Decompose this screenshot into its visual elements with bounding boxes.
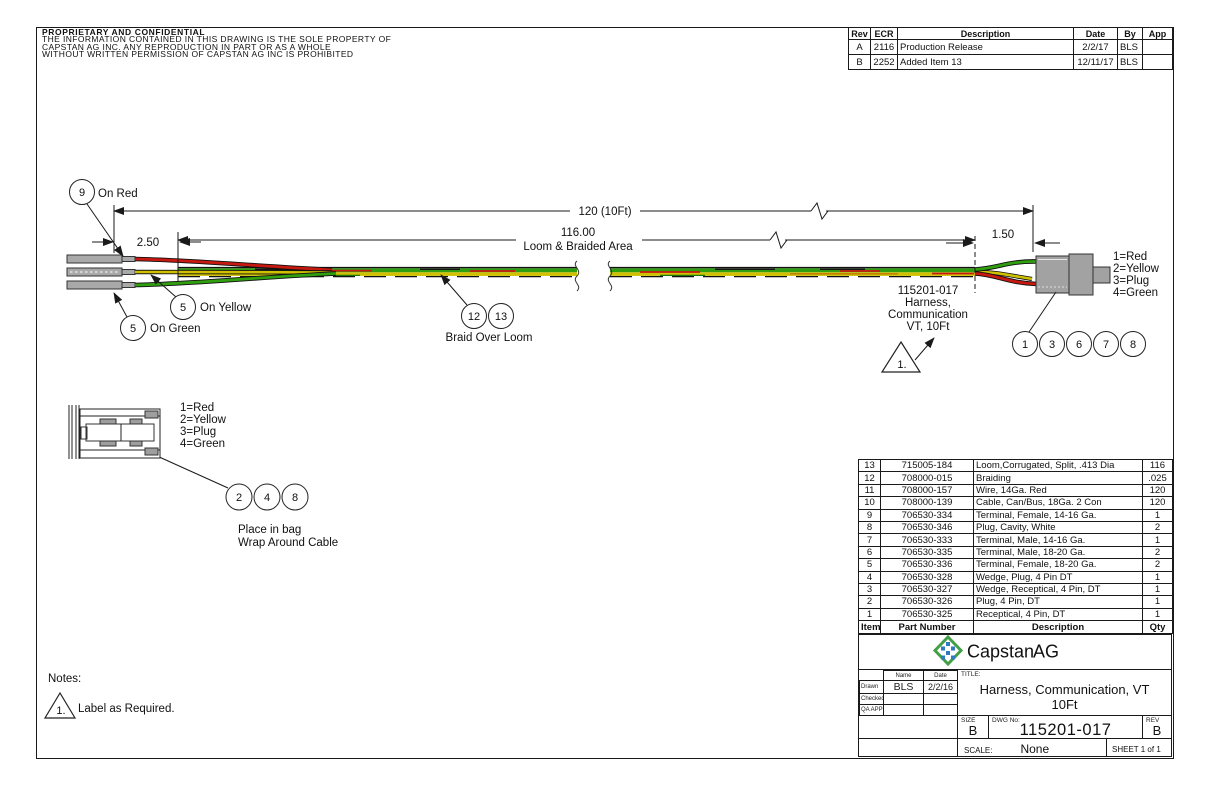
- svg-text:1.: 1.: [897, 359, 906, 371]
- bom-qty: 2: [1143, 521, 1173, 533]
- bom-item: 4: [859, 571, 881, 583]
- dim-left-stub-text: 2.50: [137, 237, 159, 249]
- bom-qty: 2: [1143, 546, 1173, 558]
- approvals-date: [924, 694, 958, 705]
- bom-row: 1706530-325Receptical, 4 Pin, DT1: [859, 608, 1173, 620]
- bom-row: 4706530-328Wedge, Plug, 4 Pin DT1: [859, 571, 1173, 583]
- bom-part: 706530-325: [881, 608, 974, 620]
- bom-desc: Wedge, Receptical, 4 Pin, DT: [974, 583, 1143, 595]
- svg-text:5: 5: [180, 302, 186, 314]
- svg-text:Communication: Communication: [888, 309, 968, 321]
- pin-labels-detail: 1=Red 2=Yellow 3=Plug 4=Green: [180, 402, 227, 450]
- bom-part: 706530-328: [881, 571, 974, 583]
- approvals-date: 2/2/16: [924, 681, 958, 694]
- approvals-name: [884, 694, 924, 705]
- bom-row: 11708000-157Wire, 14Ga. Red120: [859, 484, 1173, 496]
- dwg-label: DWG No:: [992, 717, 1020, 724]
- bag-note-line1: Place in bag: [238, 524, 301, 536]
- logo-brand-text: Capstan: [967, 642, 1034, 662]
- callout-on-red: On Red: [98, 188, 138, 200]
- dt-connector: [1036, 254, 1110, 295]
- bom-desc: Cable, Can/Bus, 18Ga. 2 Con: [974, 497, 1143, 509]
- dim-right-stub-text: 1.50: [992, 229, 1014, 241]
- svg-text:Harness,: Harness,: [905, 297, 951, 309]
- bom-item: 12: [859, 472, 881, 484]
- bom-row: 10708000-139Cable, Can/Bus, 18Ga. 2 Con1…: [859, 497, 1173, 509]
- bom-row: 5706530-336Terminal, Female, 18-20 Ga.2: [859, 559, 1173, 571]
- approvals-name: BLS: [884, 681, 924, 694]
- note-1-text: Label as Required.: [78, 703, 175, 715]
- dim-overall-text: 120 (10Ft): [578, 206, 631, 218]
- drawing-title-line2: 10Ft: [958, 697, 1171, 712]
- bom-qty: .025: [1143, 472, 1173, 484]
- drawing-sheet: PROPRIETARY AND CONFIDENTIAL THE INFORMA…: [0, 0, 1224, 792]
- logo-suffix-text: AG: [1033, 642, 1059, 662]
- connector-detail-view: [69, 405, 160, 459]
- rev-cell-block: REV B: [1142, 715, 1171, 738]
- approvals-name: [884, 705, 924, 716]
- dwg-cell: DWG No: 115201-017: [988, 715, 1142, 738]
- approvals-name-header: Name: [884, 671, 924, 681]
- callout-on-yellow: On Yellow: [200, 302, 252, 314]
- title-block: Capstan AG Name Date Drawn BLS 2/2/16 Ch…: [858, 634, 1172, 757]
- callout-braid: Braid Over Loom: [446, 332, 533, 344]
- right-wires: [975, 261, 1037, 284]
- bom-part: 706530-333: [881, 534, 974, 546]
- svg-text:3: 3: [1049, 339, 1055, 351]
- svg-text:3=Plug: 3=Plug: [1113, 275, 1149, 287]
- bom-row: 13715005-184Loom,Corrugated, Split, .413…: [859, 460, 1173, 472]
- bom-qty: 1: [1143, 571, 1173, 583]
- dim-loom-label: Loom & Braided Area: [523, 241, 633, 253]
- svg-text:115201-017: 115201-017: [898, 285, 959, 297]
- svg-text:3=Plug: 3=Plug: [180, 426, 216, 438]
- logo-diamond-icon: [935, 637, 961, 664]
- bom-part: 708000-139: [881, 497, 974, 509]
- bom-part: 706530-346: [881, 521, 974, 533]
- svg-text:12: 12: [468, 311, 480, 323]
- bom-row: 2706530-326Plug, 4 Pin, DT1: [859, 596, 1173, 608]
- bom-item: 2: [859, 596, 881, 608]
- bom-part: 706530-327: [881, 583, 974, 595]
- left-wires: [135, 259, 336, 285]
- size-label: SIZE: [961, 717, 975, 724]
- bom-desc: Plug, 4 Pin, DT: [974, 596, 1143, 608]
- bom-qty: 116: [1143, 460, 1173, 472]
- svg-text:1=Red: 1=Red: [1113, 251, 1147, 263]
- bom-qty: 1: [1143, 534, 1173, 546]
- pin-labels-right: 1=Red 2=Yellow 3=Plug 4=Green: [1113, 251, 1160, 299]
- svg-text:VT, 10Ft: VT, 10Ft: [907, 321, 951, 333]
- bom-qty: 1: [1143, 583, 1173, 595]
- svg-text:2=Yellow: 2=Yellow: [1113, 263, 1160, 275]
- bom-desc: Terminal, Male, 14-16 Ga.: [974, 534, 1143, 546]
- approvals-label: Checked: [860, 694, 884, 705]
- svg-text:2: 2: [236, 492, 242, 504]
- approvals-date-header: Date: [924, 671, 958, 681]
- bom-desc: Terminal, Female, 18-20 Ga.: [974, 559, 1143, 571]
- bag-note-line2: Wrap Around Cable: [238, 537, 338, 549]
- approvals-table: Name Date Drawn BLS 2/2/16 Checked QA AP…: [859, 670, 958, 716]
- title-label: TITLE:: [961, 671, 981, 678]
- bom-row: 7706530-333Terminal, Male, 14-16 Ga.1: [859, 534, 1173, 546]
- cable-break-left: [575, 261, 578, 291]
- scale-label: SCALE:: [964, 746, 992, 755]
- bom-qty: 120: [1143, 497, 1173, 509]
- bom-item: 6: [859, 546, 881, 558]
- size-cell: SIZE B: [957, 715, 988, 738]
- svg-text:5: 5: [130, 323, 136, 335]
- flag-note-1: 1.: [882, 342, 920, 372]
- bom-qty: 1: [1143, 509, 1173, 521]
- scale-value: None: [1020, 742, 1049, 756]
- bom-part: 708000-157: [881, 484, 974, 496]
- bom-row: 12708000-015Braiding.025: [859, 472, 1173, 484]
- svg-text:8: 8: [292, 492, 298, 504]
- svg-text:9: 9: [79, 187, 85, 199]
- bom-part: 706530-335: [881, 546, 974, 558]
- title-cell: TITLE: Harness, Communication, VT 10Ft: [957, 670, 1171, 715]
- approvals-empty-box: [859, 715, 957, 738]
- bom-qty: 1: [1143, 608, 1173, 620]
- bom-header: Item: [859, 621, 881, 634]
- bom-item: 3: [859, 583, 881, 595]
- svg-text:7: 7: [1103, 339, 1109, 351]
- svg-text:1=Red: 1=Red: [180, 402, 214, 414]
- notes-flag-1: 1.: [45, 693, 75, 718]
- bom-qty: 2: [1143, 559, 1173, 571]
- bom-header: Part Number: [881, 621, 974, 634]
- bom-desc: Loom,Corrugated, Split, .413 Dia: [974, 460, 1143, 472]
- svg-text:1.: 1.: [56, 705, 65, 717]
- company-logo: Capstan AG: [859, 635, 1171, 670]
- bom-qty: 120: [1143, 484, 1173, 496]
- bom-item: 1: [859, 608, 881, 620]
- scale-cell: SCALE: None: [957, 738, 1106, 756]
- balloon-numbers: 9 5 5 12 13 1 3 6 7 8 2 4 8: [79, 187, 1136, 504]
- bom-row: 6706530-335Terminal, Male, 18-20 Ga.2: [859, 546, 1173, 558]
- bom-item: 10: [859, 497, 881, 509]
- part-callout: 115201-017 Harness, Communication VT, 10…: [888, 285, 968, 333]
- bom-part: 708000-015: [881, 472, 974, 484]
- bom-item: 5: [859, 559, 881, 571]
- ring-terminals: [67, 255, 135, 289]
- bom-desc: Wedge, Plug, 4 Pin DT: [974, 571, 1143, 583]
- bom-part: 706530-334: [881, 509, 974, 521]
- svg-text:4=Green: 4=Green: [180, 438, 225, 450]
- svg-text:13: 13: [495, 311, 507, 323]
- approvals-label: Drawn: [860, 681, 884, 694]
- bom-part: 715005-184: [881, 460, 974, 472]
- approvals-label: QA APP: [860, 705, 884, 716]
- svg-text:6: 6: [1076, 339, 1082, 351]
- bom-part: 706530-326: [881, 596, 974, 608]
- bom-table: 13715005-184Loom,Corrugated, Split, .413…: [858, 459, 1173, 634]
- svg-text:2=Yellow: 2=Yellow: [180, 414, 227, 426]
- bom-item: 7: [859, 534, 881, 546]
- bom-row: 9706530-334Terminal, Female, 14-16 Ga.1: [859, 509, 1173, 521]
- rev-value: B: [1143, 723, 1171, 738]
- notes-title: Notes:: [48, 673, 81, 685]
- bom-row: 3706530-327Wedge, Receptical, 4 Pin, DT1: [859, 583, 1173, 595]
- bom-qty: 1: [1143, 596, 1173, 608]
- sheet-cell: SHEET 1 of 1: [1106, 738, 1171, 756]
- dim-loom-text: 116.00: [561, 227, 595, 239]
- bom-desc: Wire, 14Ga. Red: [974, 484, 1143, 496]
- bom-desc: Terminal, Female, 14-16 Ga.: [974, 509, 1143, 521]
- drawing-title-line1: Harness, Communication, VT: [958, 682, 1171, 697]
- bom-desc: Terminal, Male, 18-20 Ga.: [974, 546, 1143, 558]
- approvals-spacer: [860, 671, 884, 681]
- bom-item: 8: [859, 521, 881, 533]
- rev-label: REV: [1146, 717, 1159, 724]
- svg-text:4=Green: 4=Green: [1113, 287, 1158, 299]
- bom-desc: Receptical, 4 Pin, DT: [974, 608, 1143, 620]
- bottom-empty-box: [859, 738, 957, 756]
- svg-text:1: 1: [1022, 339, 1028, 351]
- bom-header: Description: [974, 621, 1143, 634]
- svg-text:4: 4: [264, 492, 270, 504]
- bom-item: 11: [859, 484, 881, 496]
- bom-part: 706530-336: [881, 559, 974, 571]
- bom-item: 9: [859, 509, 881, 521]
- bom-header-row: Item Part Number Description Qty: [859, 621, 1173, 634]
- yellow-wire: [135, 272, 332, 273]
- svg-text:8: 8: [1130, 339, 1136, 351]
- bom-row: 8706530-346Plug, Cavity, White2: [859, 521, 1173, 533]
- bom-item: 13: [859, 460, 881, 472]
- size-value: B: [958, 723, 988, 738]
- bom-desc: Braiding: [974, 472, 1143, 484]
- bom-header: Qty: [1143, 621, 1173, 634]
- bom-desc: Plug, Cavity, White: [974, 521, 1143, 533]
- approvals-date: [924, 705, 958, 716]
- callout-on-green: On Green: [150, 323, 201, 335]
